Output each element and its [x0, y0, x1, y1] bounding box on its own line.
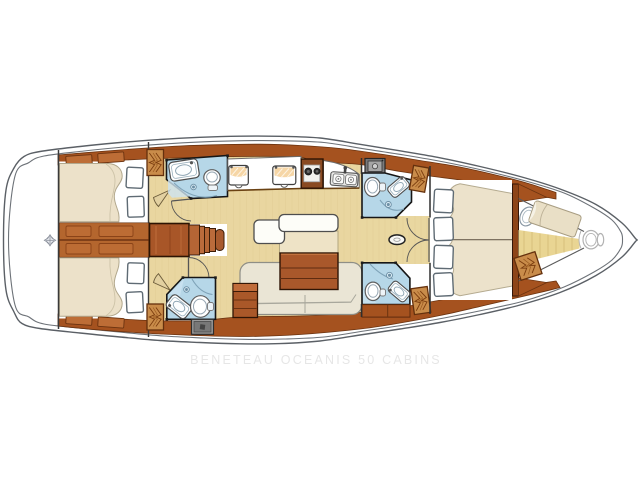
svg-text:BENETEAU OCEANIS 50 CABINS: BENETEAU OCEANIS 50 CABINS [190, 353, 442, 367]
